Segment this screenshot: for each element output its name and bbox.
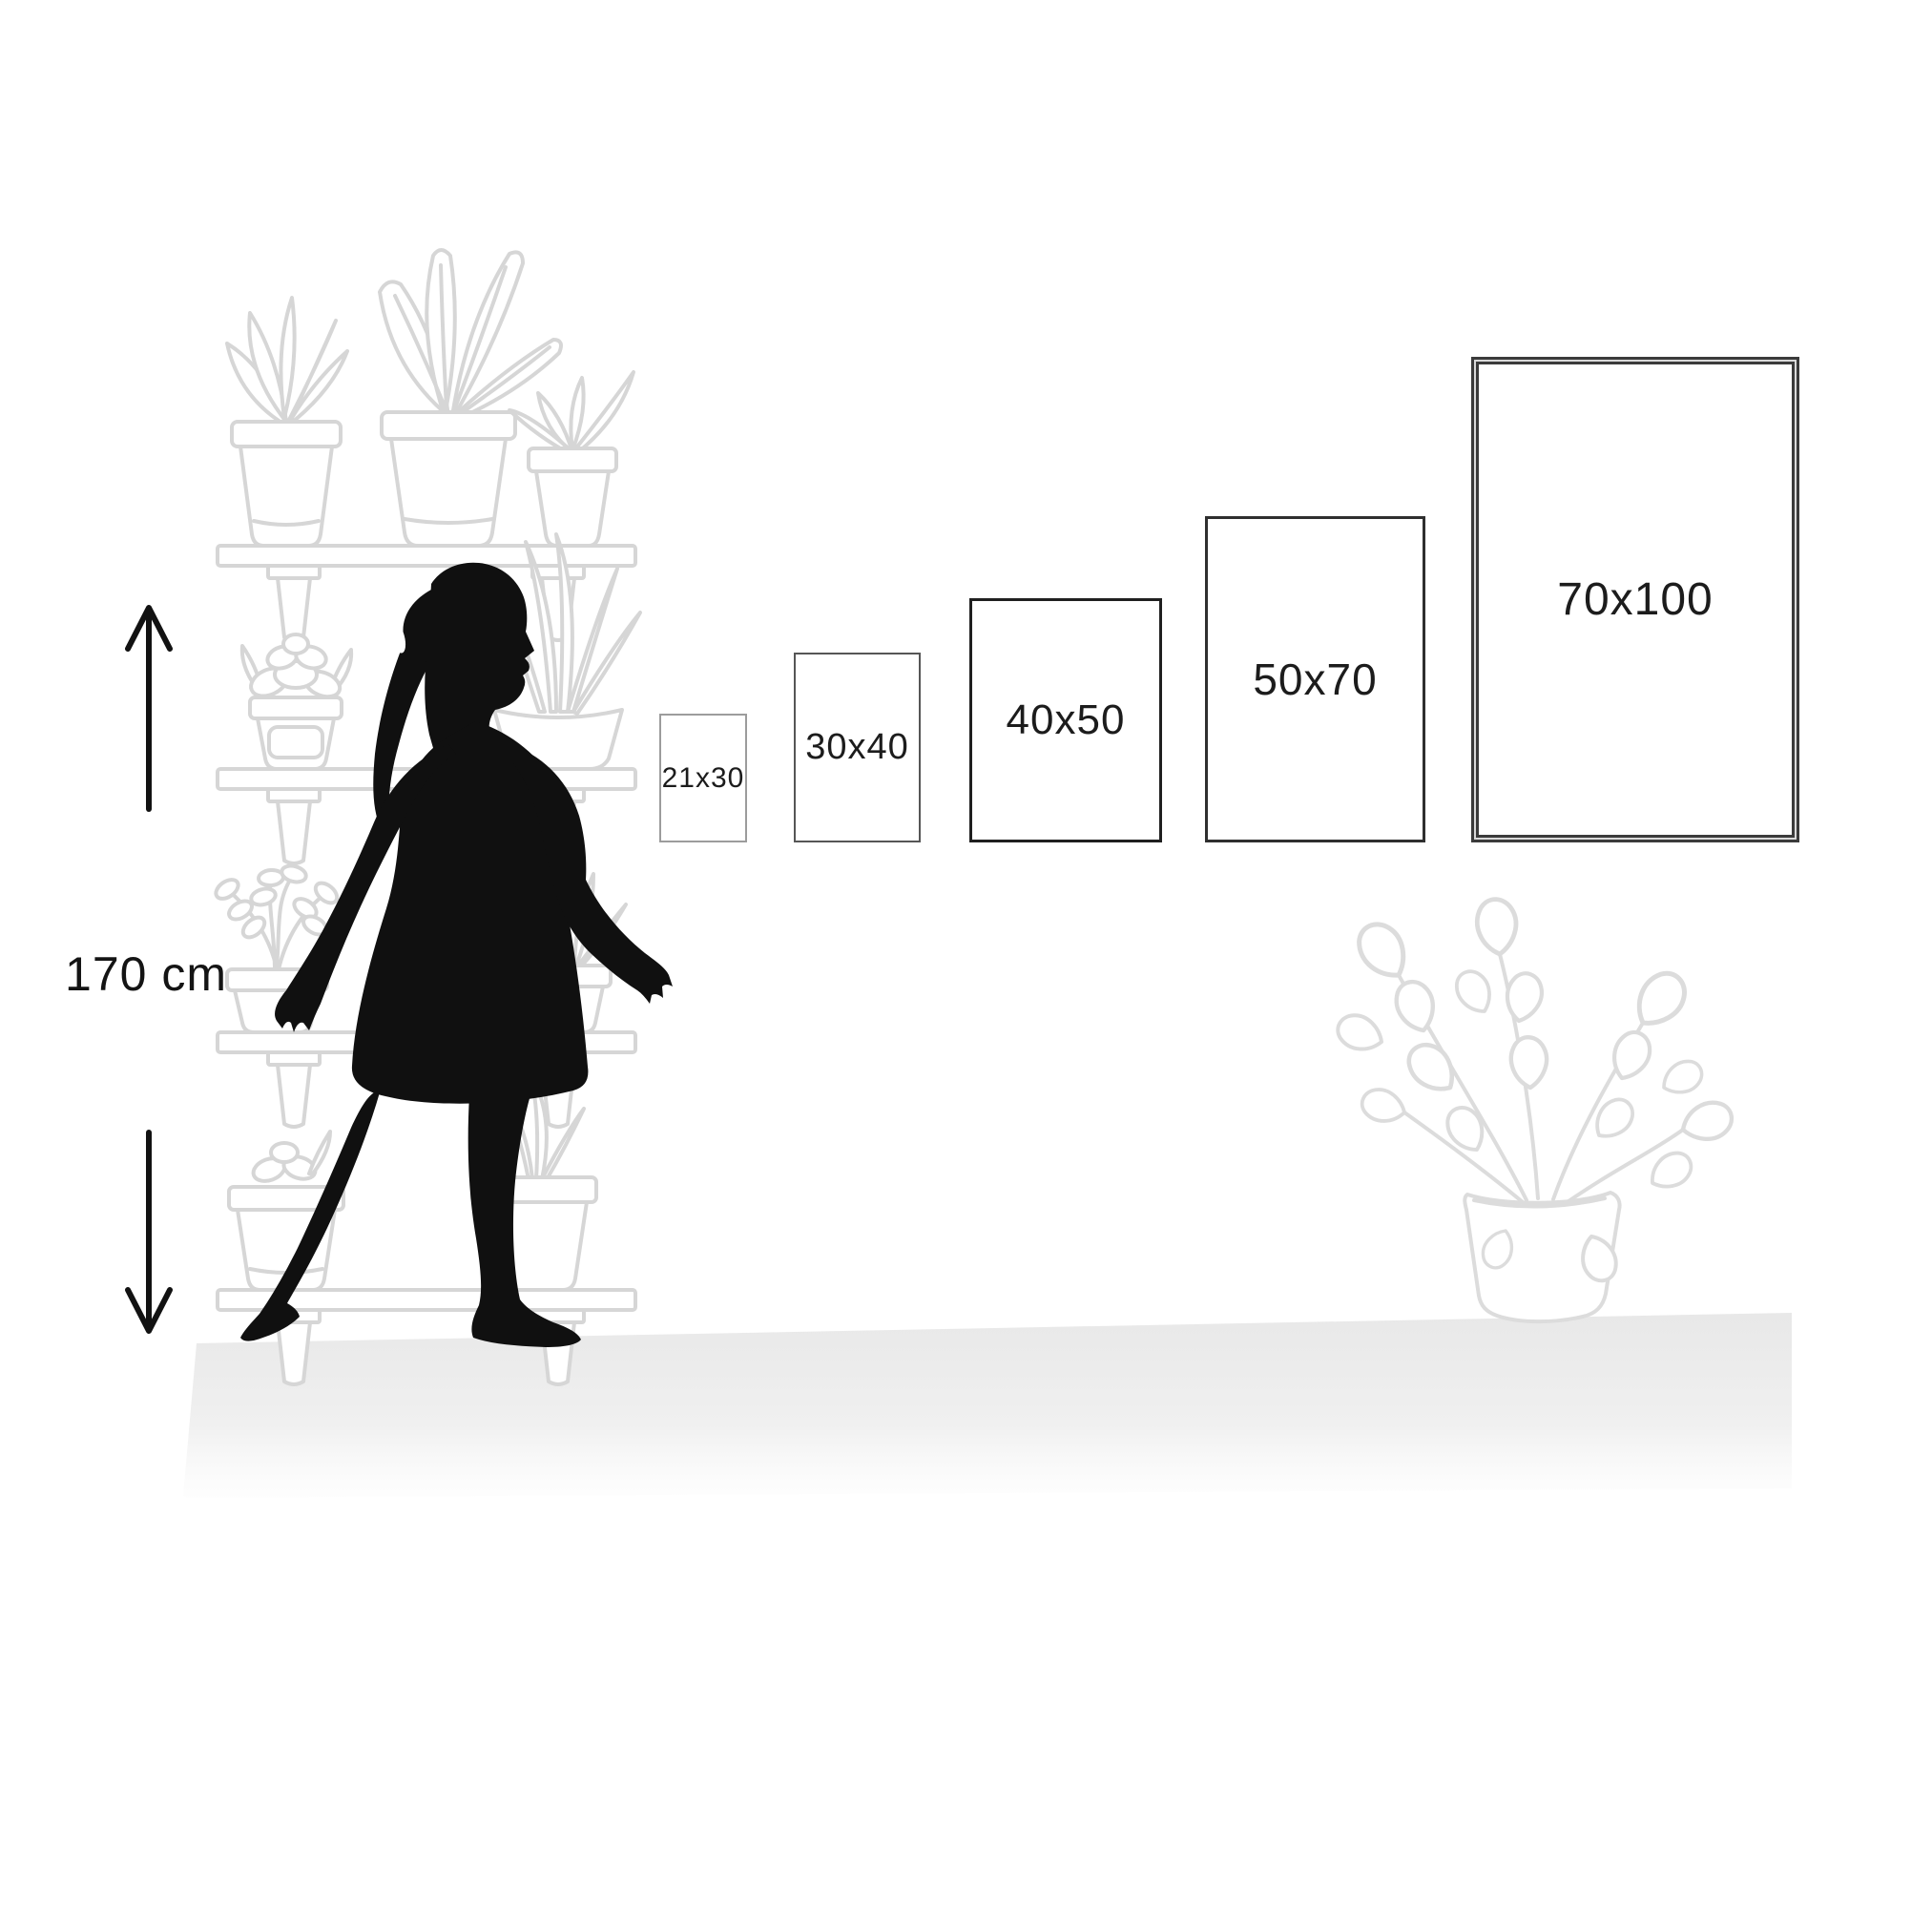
size-box-30x40: 30x40 (794, 653, 921, 842)
size-label: 40x50 (1007, 696, 1126, 744)
size-box-21x30: 21x30 (659, 714, 747, 842)
potted-plant-illustration (1333, 897, 1736, 1321)
size-box-40x50: 40x50 (969, 598, 1162, 842)
down-arrow-icon (128, 1132, 170, 1331)
size-label: 70x100 (1557, 573, 1713, 626)
size-guide-canvas: 21x30 30x40 40x50 50x70 70x100 170 cm (0, 0, 1932, 1932)
size-label: 30x40 (805, 727, 909, 768)
size-box-70x100: 70x100 (1471, 357, 1799, 842)
succulent-pot-icon (242, 634, 351, 769)
illustration-layer (0, 0, 1932, 1932)
plant-pot-top-left-icon (227, 298, 347, 546)
size-label: 50x70 (1253, 654, 1377, 705)
plant-pot-top-middle-icon (380, 250, 561, 546)
height-measurement-label: 170 cm (55, 946, 237, 1002)
plant-pot-top-right-icon (509, 372, 634, 546)
up-arrow-icon (128, 608, 170, 809)
floor-shadow (183, 1313, 1792, 1498)
size-label: 21x30 (662, 762, 745, 795)
size-box-50x70: 50x70 (1205, 516, 1425, 842)
